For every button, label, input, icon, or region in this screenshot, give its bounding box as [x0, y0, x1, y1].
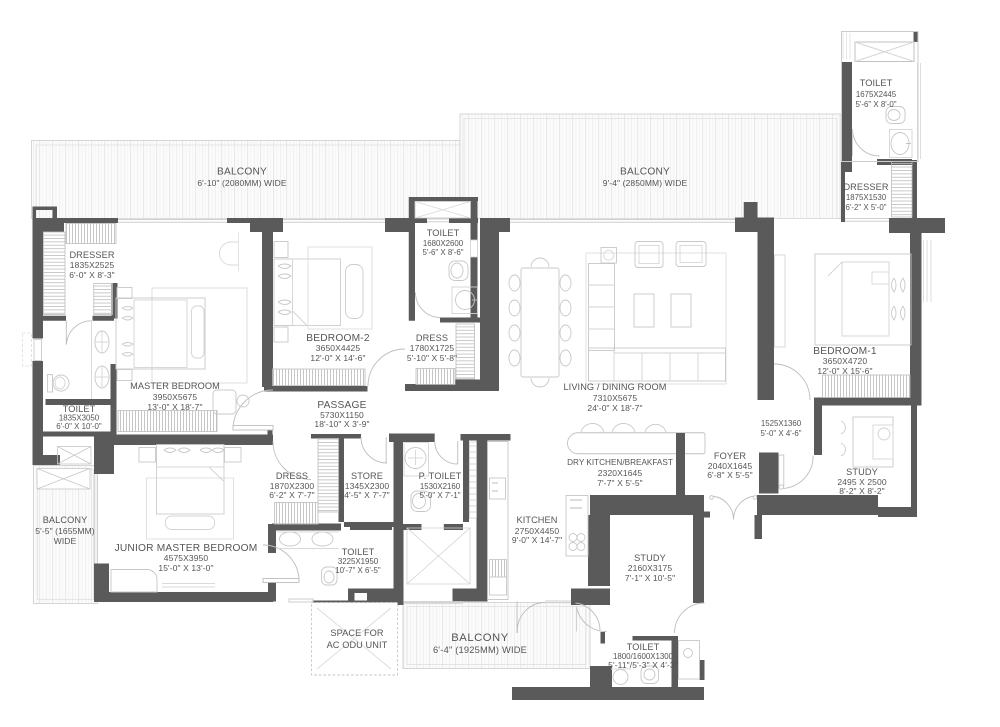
svg-text:7'-1" X 10'-5": 7'-1" X 10'-5": [625, 573, 675, 583]
svg-text:TOILET: TOILET: [860, 78, 893, 88]
svg-text:FOYER: FOYER: [714, 451, 746, 461]
svg-text:6'-8" X 5'-5": 6'-8" X 5'-5": [707, 470, 753, 480]
svg-text:DRESSER: DRESSER: [69, 250, 114, 260]
svg-text:2160X3175: 2160X3175: [628, 563, 673, 573]
svg-text:9'-0" X 14'-7": 9'-0" X 14'-7": [512, 535, 562, 545]
svg-text:3650X4720: 3650X4720: [823, 356, 868, 366]
svg-text:LIVING / DINING ROOM: LIVING / DINING ROOM: [563, 382, 666, 392]
svg-text:1680X2600: 1680X2600: [423, 239, 464, 248]
svg-text:13'-0" X 18'-7": 13'-0" X 18'-7": [147, 402, 202, 412]
svg-text:1525X1360: 1525X1360: [761, 419, 802, 428]
svg-text:15'-0" X 13'-0": 15'-0" X 13'-0": [158, 563, 213, 573]
svg-text:BALCONY: BALCONY: [451, 632, 509, 644]
svg-text:5'-5" (1655MM): 5'-5" (1655MM): [35, 526, 94, 536]
svg-text:2320X1645: 2320X1645: [598, 468, 643, 478]
svg-text:7310X5675: 7310X5675: [593, 393, 638, 403]
svg-text:3950X5675: 3950X5675: [153, 392, 198, 402]
svg-text:DRESSER: DRESSER: [843, 182, 888, 192]
svg-text:TOILET: TOILET: [427, 228, 460, 238]
svg-text:6'-2" X 7'-7": 6'-2" X 7'-7": [269, 490, 315, 500]
svg-text:MASTER BEDROOM: MASTER BEDROOM: [130, 381, 220, 391]
svg-text:BALCONY: BALCONY: [43, 515, 88, 525]
svg-text:12'-0" X 14'-6": 12'-0" X 14'-6": [310, 353, 365, 363]
svg-text:4575X3950: 4575X3950: [164, 553, 209, 563]
svg-text:P. TOILET: P. TOILET: [419, 471, 462, 481]
svg-text:DRY KITCHEN/BREAKFAST: DRY KITCHEN/BREAKFAST: [567, 458, 673, 467]
svg-text:1835X2525: 1835X2525: [70, 260, 115, 270]
svg-text:1530X2160: 1530X2160: [420, 482, 461, 491]
svg-text:10'-7" X 6'-5": 10'-7" X 6'-5": [335, 566, 381, 575]
svg-text:5'-0" X 4'-6": 5'-0" X 4'-6": [760, 429, 801, 438]
svg-text:TOILET: TOILET: [342, 547, 375, 557]
svg-text:5'-6" X 8'-0": 5'-6" X 8'-0": [855, 100, 896, 109]
svg-text:6'-0" X 8'-3": 6'-0" X 8'-3": [69, 270, 115, 280]
svg-text:6'-4" (1925MM) WIDE: 6'-4" (1925MM) WIDE: [433, 645, 527, 655]
svg-text:12'-0" X 15'-6": 12'-0" X 15'-6": [817, 366, 872, 376]
svg-text:5'-11"/5'-3" X 4'-3": 5'-11"/5'-3" X 4'-3": [608, 660, 678, 670]
svg-text:5'-10" X 5'-8": 5'-10" X 5'-8": [407, 353, 457, 363]
svg-text:WIDE: WIDE: [54, 536, 77, 546]
svg-text:5'-0" X 7'-1": 5'-0" X 7'-1": [419, 491, 460, 500]
svg-text:3650X4425: 3650X4425: [316, 343, 361, 353]
svg-text:24'-0" X 18'-7": 24'-0" X 18'-7": [587, 403, 642, 413]
svg-text:SPACE FOR: SPACE FOR: [330, 628, 384, 638]
svg-text:TOILET: TOILET: [63, 404, 96, 414]
svg-text:DRESS: DRESS: [416, 333, 448, 343]
svg-text:AC ODU UNIT: AC ODU UNIT: [327, 640, 388, 650]
svg-text:STUDY: STUDY: [846, 467, 878, 477]
svg-text:3225X1950: 3225X1950: [338, 557, 379, 566]
svg-text:1875X1530: 1875X1530: [846, 193, 887, 202]
svg-text:7'-7" X 5'-5": 7'-7" X 5'-5": [597, 478, 643, 488]
svg-text:STORE: STORE: [351, 471, 383, 481]
svg-text:8'-2" X 8'-2": 8'-2" X 8'-2": [839, 486, 885, 496]
svg-text:6'-2" X 5'-0": 6'-2" X 5'-0": [845, 203, 886, 212]
svg-text:KITCHEN: KITCHEN: [516, 515, 557, 525]
svg-text:BALCONY: BALCONY: [217, 167, 267, 178]
svg-text:6'-10" (2080MM) WIDE: 6'-10" (2080MM) WIDE: [197, 178, 287, 188]
svg-text:5'-6" X 8'-6": 5'-6" X 8'-6": [422, 248, 463, 257]
svg-text:STUDY: STUDY: [634, 553, 666, 563]
svg-text:9'-4" (2850MM) WIDE: 9'-4" (2850MM) WIDE: [603, 178, 688, 188]
svg-text:1675X2445: 1675X2445: [856, 90, 897, 99]
svg-text:6'-0" X 10'-0": 6'-0" X 10'-0": [56, 422, 102, 431]
svg-text:TOILET: TOILET: [627, 642, 660, 652]
svg-text:4'-5" X 7'-7": 4'-5" X 7'-7": [344, 490, 390, 500]
svg-text:18'-10" X 3'-9": 18'-10" X 3'-9": [314, 419, 369, 429]
svg-text:BALCONY: BALCONY: [620, 167, 670, 178]
svg-text:DRESS: DRESS: [276, 471, 308, 481]
svg-text:1780X1725: 1780X1725: [410, 343, 455, 353]
